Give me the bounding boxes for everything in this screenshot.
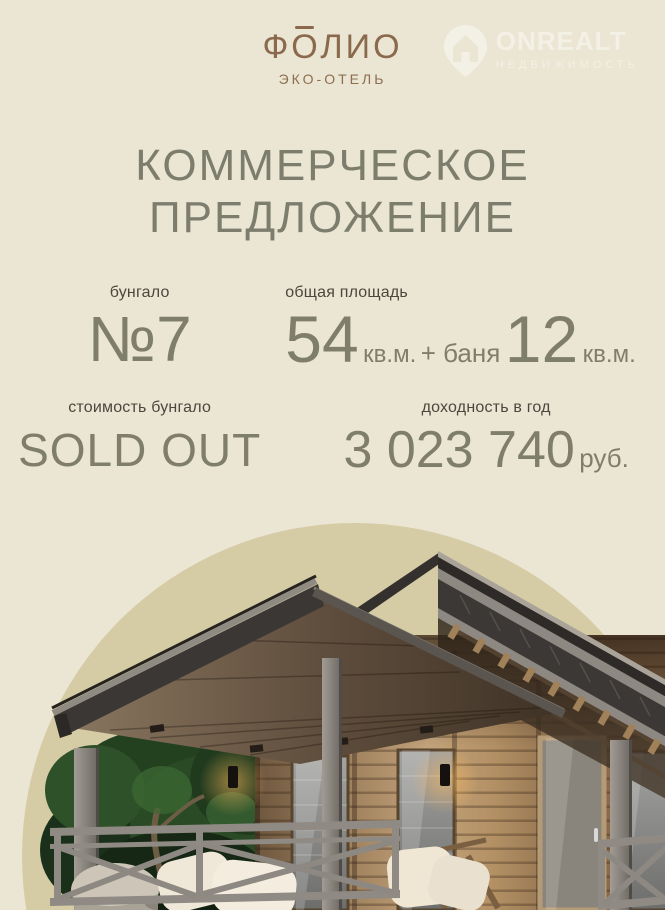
map-pin-house-icon — [443, 24, 488, 78]
area-connector: + баня — [421, 338, 501, 368]
sconce-icon — [228, 766, 238, 788]
brand-name: ФОЛИО — [262, 30, 402, 64]
stat-price-value: SOLD OUT — [0, 421, 279, 481]
stat-area-label: общая площадь — [285, 284, 665, 302]
area-extra-value: 12 — [505, 302, 578, 376]
glass-door — [540, 738, 604, 910]
stat-income: доходность в год 3 023 740 руб. — [279, 399, 665, 481]
macron-accent — [295, 26, 314, 29]
stat-area-value: 54 кв.м. + баня 12 кв.м. — [285, 306, 665, 372]
income-value: 3 023 740 — [343, 421, 574, 479]
stat-price-label: стоимость бунгало — [0, 399, 279, 417]
area-extra-unit: кв.м. — [583, 341, 636, 368]
watermark-text: ONREALT НЕДВИЖИМОСТЬ — [496, 24, 639, 71]
door-handle — [594, 828, 598, 842]
watermark-tagline: НЕДВИЖИМОСТЬ — [496, 59, 639, 71]
stat-income-value-line: 3 023 740 руб. — [307, 421, 665, 481]
stat-bungalow-value: №7 — [0, 306, 279, 373]
stat-price: стоимость бунгало SOLD OUT — [0, 399, 279, 481]
bungalow-photo — [0, 500, 665, 910]
stats-row-1: бунгало №7 общая площадь 54 кв.м. + баня… — [0, 284, 665, 373]
stats-block: бунгало №7 общая площадь 54 кв.м. + баня… — [0, 284, 665, 481]
onrealt-watermark: ONREALT НЕДВИЖИМОСТЬ — [443, 24, 639, 78]
title-line1: КОММЕРЧЕСКОЕ — [0, 140, 665, 192]
stat-area: общая площадь 54 кв.м. + баня 12 кв.м. — [279, 284, 665, 372]
sconce-icon — [440, 764, 450, 786]
area-main-value: 54 — [285, 302, 358, 376]
watermark-name: ONREALT — [496, 28, 639, 54]
area-main-unit: кв.м. — [363, 341, 416, 368]
income-unit: руб. — [579, 443, 629, 473]
stat-bungalow: бунгало №7 — [0, 284, 279, 373]
stat-income-label: доходность в год — [307, 399, 665, 417]
stat-bungalow-label: бунгало — [0, 284, 279, 302]
stats-row-2: стоимость бунгало SOLD OUT доходность в … — [0, 399, 665, 481]
brand-name-wrap: ФОЛИО — [262, 30, 402, 64]
title-line2: ПРЕДЛОЖЕНИЕ — [0, 192, 665, 244]
commercial-offer-page: ФОЛИО ЭКО-ОТЕЛЬ ONREALT НЕДВИЖИМОСТЬ КОМ… — [0, 0, 665, 910]
page-title: КОММЕРЧЕСКОЕ ПРЕДЛОЖЕНИЕ — [0, 140, 665, 244]
